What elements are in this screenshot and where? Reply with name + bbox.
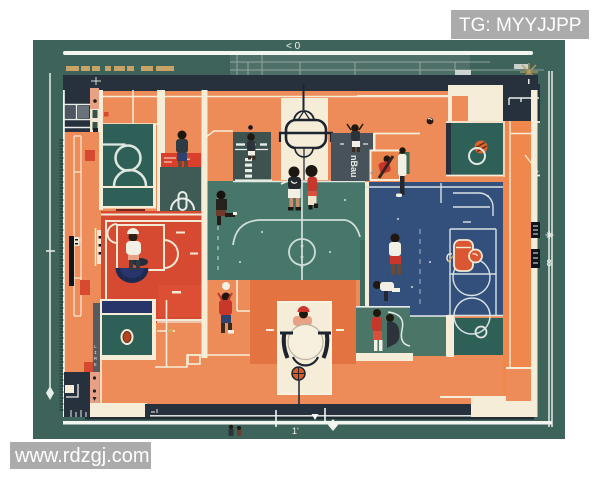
svg-text:TG: MYYJJPP: TG: MYYJJPP (459, 15, 581, 36)
svg-text:nBau: nBau (349, 155, 359, 178)
svg-text:8: 8 (547, 258, 552, 269)
svg-text:1': 1' (292, 426, 299, 436)
svg-text:M: M (94, 356, 97, 362)
svg-text:I: I (94, 350, 97, 356)
svg-text:L: L (94, 344, 97, 350)
svg-text:E: E (94, 362, 97, 368)
svg-text:www.rdzgj.com: www.rdzgj.com (14, 445, 149, 467)
svg-text:< 0: < 0 (286, 41, 301, 52)
